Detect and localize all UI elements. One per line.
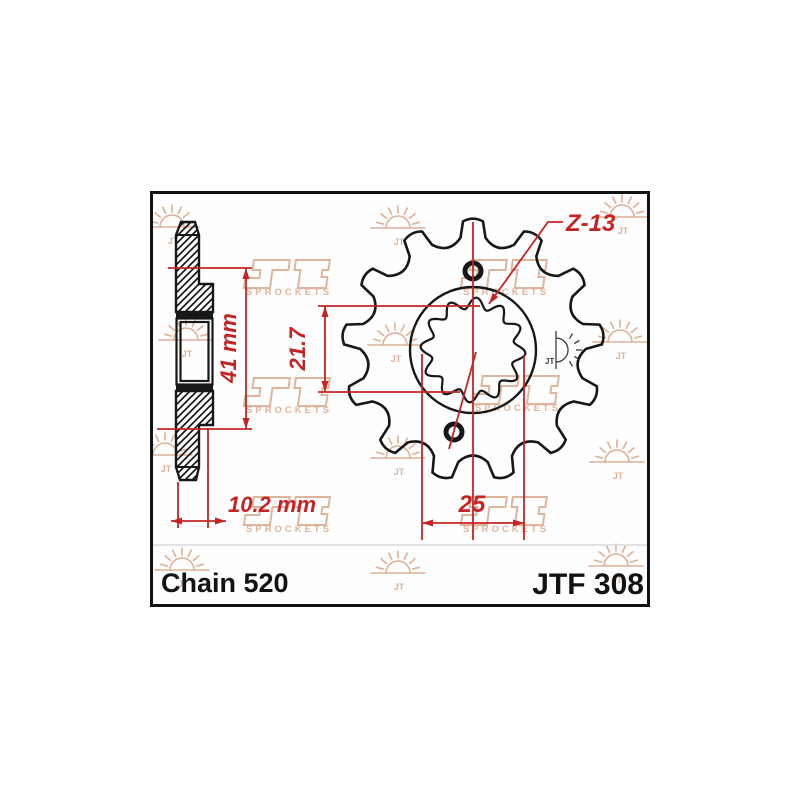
jt-sun-watermark: JT <box>371 206 425 247</box>
chain-size-label: Chain 520 <box>161 568 289 598</box>
product-image-canvas: JT JT JT JT <box>0 0 800 800</box>
teeth-count-label: Z-13 <box>565 210 616 237</box>
svg-text:JT: JT <box>618 226 629 236</box>
dim-21-7: 21.7 <box>285 326 310 372</box>
jt-sprockets-logo-watermark: SPROCKETS <box>244 260 332 298</box>
drawing-frame: JT JT JT JT <box>150 191 650 607</box>
jt-stamp-text: JT <box>545 357 554 366</box>
svg-text:JT: JT <box>394 237 405 247</box>
svg-text:JT: JT <box>613 471 624 481</box>
dim-41mm: 41 mm <box>216 313 241 384</box>
dim-10-2mm: 10.2 mm <box>228 492 316 517</box>
svg-text:SPROCKETS: SPROCKETS <box>246 405 332 416</box>
svg-text:SPROCKETS: SPROCKETS <box>246 287 332 298</box>
dim-25: 25 <box>458 491 486 518</box>
svg-text:JT: JT <box>391 354 402 364</box>
svg-text:JT: JT <box>394 467 405 477</box>
watermark-layer: JT JT JT JT <box>153 195 647 592</box>
svg-text:JT: JT <box>161 464 172 474</box>
jt-sprockets-logo-watermark: SPROCKETS <box>244 378 332 416</box>
svg-text:SPROCKETS: SPROCKETS <box>246 524 332 535</box>
svg-text:JT: JT <box>394 582 405 592</box>
technical-drawing: JT JT JT JT <box>153 194 647 604</box>
model-number-label: JTF 308 <box>532 568 644 601</box>
jt-sun-watermark: JT <box>371 551 425 592</box>
svg-text:SPROCKETS: SPROCKETS <box>463 524 549 535</box>
svg-text:JT: JT <box>616 351 627 361</box>
svg-text:JT: JT <box>182 349 193 359</box>
jt-sun-watermark: JT <box>590 440 644 481</box>
jt-sun-watermark: JT <box>159 318 213 359</box>
